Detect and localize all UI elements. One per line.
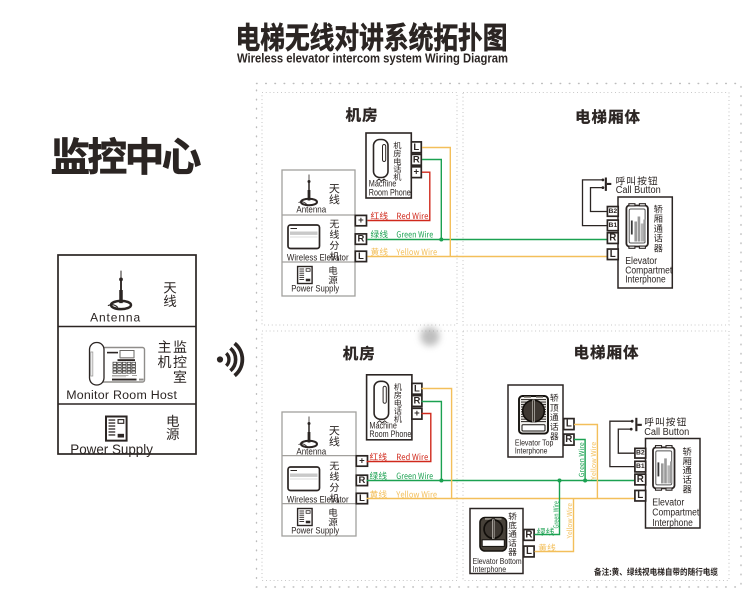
svg-text:L: L <box>358 251 364 262</box>
svg-text:B2: B2 <box>636 450 645 457</box>
svg-text:机房电话机: 机房电话机 <box>393 139 402 183</box>
svg-text:L: L <box>413 142 419 153</box>
svg-text:L: L <box>414 383 420 394</box>
svg-text:机房电话机: 机房电话机 <box>394 381 403 425</box>
svg-text:Antenna: Antenna <box>296 204 327 214</box>
svg-text:绿线: 绿线 <box>371 228 389 241</box>
svg-text:备注:黄、绿线视电梯自带的随行电缆: 备注:黄、绿线视电梯自带的随行电缆 <box>594 565 718 578</box>
svg-text:Power Supply: Power Supply <box>291 525 339 535</box>
svg-text:Call Button: Call Button <box>616 185 661 196</box>
svg-text:R: R <box>637 474 644 485</box>
svg-text:Room Phone: Room Phone <box>369 187 411 197</box>
svg-text:Yellow Wire: Yellow Wire <box>565 503 575 540</box>
svg-text:红线: 红线 <box>371 209 389 222</box>
svg-text:电梯厢体: 电梯厢体 <box>573 341 639 363</box>
svg-text:Interphone: Interphone <box>515 446 548 456</box>
svg-text:Monitor Room Host: Monitor Room Host <box>66 388 177 402</box>
svg-text:Power Supply: Power Supply <box>70 442 153 457</box>
svg-text:天线: 天线 <box>329 422 340 449</box>
svg-text:Green Wire: Green Wire <box>577 442 587 477</box>
svg-text:Interphone: Interphone <box>652 518 693 529</box>
svg-text:Green Wire: Green Wire <box>552 501 562 529</box>
svg-text:Red Wire: Red Wire <box>396 210 428 222</box>
svg-text:B1: B1 <box>608 222 617 229</box>
svg-text:Yellow Wire: Yellow Wire <box>589 442 599 481</box>
svg-text:轿底通话器: 轿底通话器 <box>508 510 517 558</box>
svg-text:Wireless elevator intercom sys: Wireless elevator intercom system Wiring… <box>237 52 508 66</box>
svg-text:黄线: 黄线 <box>538 541 556 554</box>
svg-text:Yellow Wire: Yellow Wire <box>396 246 438 258</box>
svg-text:Green Wire: Green Wire <box>396 470 433 482</box>
svg-text:轿厢通话器: 轿厢通话器 <box>683 444 693 496</box>
svg-text:R: R <box>357 234 364 245</box>
svg-text:Yellow Wire: Yellow Wire <box>395 488 437 500</box>
svg-text:电梯厢体: 电梯厢体 <box>575 105 641 127</box>
svg-text:+: + <box>414 167 420 178</box>
svg-text:机房: 机房 <box>345 104 378 126</box>
svg-text:R: R <box>358 475 365 486</box>
svg-text:天线: 天线 <box>329 180 340 207</box>
svg-text:天线: 天线 <box>163 277 177 311</box>
svg-text:R: R <box>565 434 572 445</box>
svg-text:Room Phone: Room Phone <box>369 429 411 439</box>
svg-text:B2: B2 <box>608 208 617 215</box>
svg-text:B1: B1 <box>636 463 645 470</box>
svg-text:主机: 主机 <box>158 337 172 372</box>
svg-text:黄线: 黄线 <box>371 245 389 258</box>
svg-text:+: + <box>359 456 365 467</box>
svg-text:R: R <box>525 529 532 540</box>
svg-text:L: L <box>637 490 643 501</box>
svg-text:电源: 电源 <box>166 410 180 443</box>
svg-text:R: R <box>609 233 616 244</box>
svg-text:监控中心: 监控中心 <box>51 126 201 183</box>
svg-text:L: L <box>526 546 532 557</box>
svg-text:Antenna: Antenna <box>296 446 327 456</box>
svg-text:L: L <box>610 249 616 260</box>
svg-text:Interphone: Interphone <box>625 274 666 285</box>
svg-text:Elevator: Elevator <box>652 497 685 508</box>
svg-text:Green Wire: Green Wire <box>396 229 433 241</box>
svg-text:黄线: 黄线 <box>370 487 388 500</box>
svg-text:轿顶通话器: 轿顶通话器 <box>550 391 559 442</box>
svg-text:L: L <box>566 419 572 430</box>
svg-text:+: + <box>358 215 364 226</box>
svg-text:R: R <box>413 396 420 407</box>
svg-text:轿厢通话器: 轿厢通话器 <box>654 201 664 254</box>
svg-text:+: + <box>414 408 420 419</box>
svg-text:L: L <box>359 493 365 504</box>
svg-text:Power Supply: Power Supply <box>291 283 339 293</box>
svg-text:绿线: 绿线 <box>370 469 388 482</box>
svg-text:Wireless Elevator: Wireless Elevator <box>287 494 349 504</box>
svg-text:Interphone: Interphone <box>473 564 507 574</box>
svg-text:机房: 机房 <box>343 342 376 364</box>
svg-text:Wireless Elevator: Wireless Elevator <box>287 252 349 262</box>
svg-text:R: R <box>413 154 420 165</box>
svg-text:红线: 红线 <box>370 450 388 463</box>
svg-text:Antenna: Antenna <box>90 310 141 324</box>
svg-text:监控室: 监控室 <box>173 337 187 387</box>
svg-text:Red Wire: Red Wire <box>396 451 428 463</box>
svg-text:Call Button: Call Button <box>644 427 689 438</box>
